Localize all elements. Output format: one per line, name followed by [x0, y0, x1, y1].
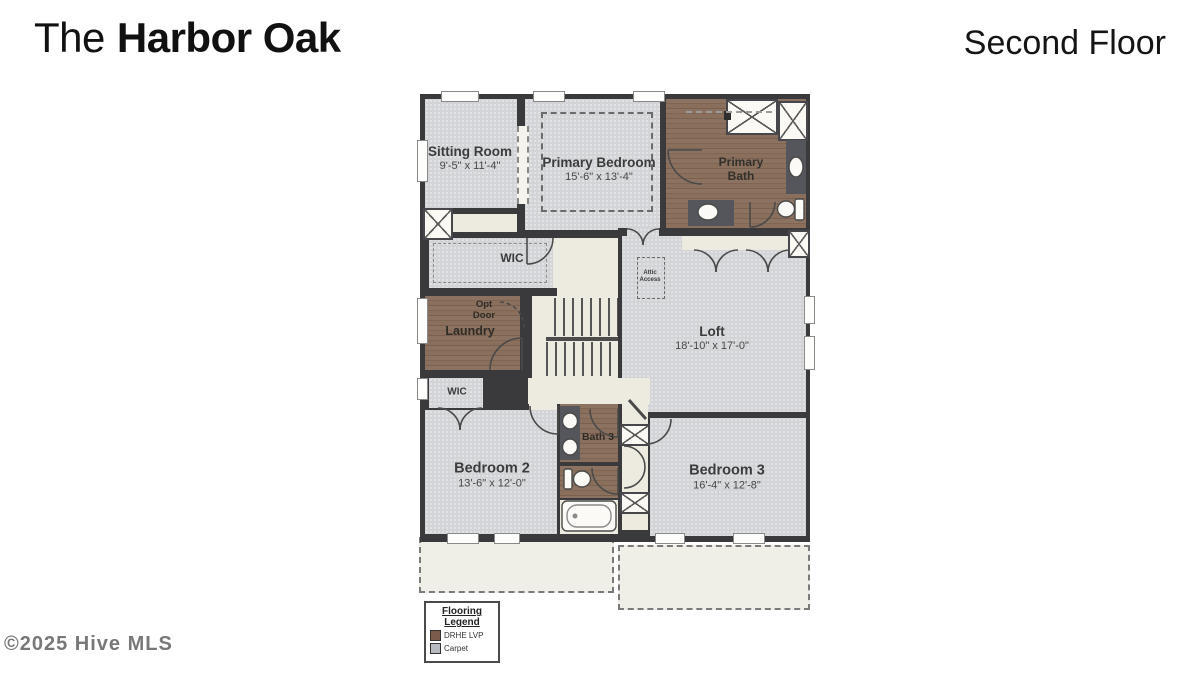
window: [441, 91, 479, 102]
window: [804, 336, 815, 370]
bath3-vanity-counter: [560, 406, 580, 460]
stairs-lower-treads: [546, 342, 618, 376]
shower-head-icon: [724, 111, 731, 120]
cased-opening: [517, 126, 529, 204]
sitting-room-label: Sitting Room 9'-5" x 11'-4": [428, 144, 512, 172]
wic-shelving: [433, 243, 547, 283]
french-door-opening: [627, 228, 659, 236]
carpet-swatch-icon: [430, 643, 441, 654]
linen-closet-icon-d: [620, 492, 650, 514]
linen-closet-icon-a: [423, 208, 453, 240]
flooring-legend: Flooring Legend DRHE LVP Carpet: [424, 601, 500, 663]
legend-item-lvp: DRHE LVP: [430, 630, 494, 641]
window: [804, 296, 815, 324]
floor-label: Second Floor: [964, 24, 1166, 63]
primary-vanity-counter: [786, 140, 806, 194]
opt-door-label: Opt Door: [466, 300, 502, 322]
window: [733, 533, 765, 544]
primary-bedroom-label: Primary Bedroom 15'-6" x 13'-4": [542, 155, 655, 183]
bedroom3-closet-floor: [624, 444, 646, 488]
stairs-rail: [546, 337, 618, 341]
laundry-label: Laundry: [445, 324, 494, 338]
roof-area-right: [618, 545, 810, 610]
page-title: TheHarbor Oak: [34, 14, 341, 62]
title-plan-name: Harbor Oak: [117, 14, 341, 61]
linen-closet-icon-c: [620, 424, 650, 446]
linen-closet-icon-b: [788, 230, 810, 258]
primary-vanity2-counter: [688, 200, 734, 226]
window: [655, 533, 685, 544]
stairs-upper-treads: [554, 298, 618, 336]
legend-title: Flooring Legend: [430, 606, 494, 628]
bedroom2-wic-label: WIC: [447, 386, 466, 398]
window: [533, 91, 565, 102]
corner-shower-icon: [778, 101, 808, 141]
title-prefix: The: [34, 14, 105, 61]
lvp-swatch-icon: [430, 630, 441, 641]
attic-access-label: Attic Access: [637, 270, 663, 284]
roof-area-left: [419, 537, 614, 593]
shower-icon: [726, 99, 778, 135]
primary-bath-label: Primary Bath: [710, 156, 772, 184]
bath3-tub-area: [560, 500, 618, 534]
copyright-watermark: ©2025 Hive MLS: [4, 633, 173, 656]
upper-hall-floor: [528, 378, 650, 404]
window: [417, 298, 428, 344]
floorplan-page: TheHarbor Oak Second Floor ©2025 Hive ML…: [0, 0, 1200, 675]
bedroom2-label: Bedroom 2 13'-6" x 12'-0": [454, 460, 530, 489]
window: [417, 140, 428, 182]
window: [494, 533, 520, 544]
legend-item-carpet: Carpet: [430, 643, 494, 654]
loft-label: Loft 18'-10" x 17'-0": [675, 324, 749, 352]
bath3-wc-floor: [560, 466, 618, 498]
bedroom3-label: Bedroom 3 16'-4" x 12'-8": [689, 462, 765, 491]
bath3-label: Bath 3: [582, 431, 614, 443]
window: [447, 533, 479, 544]
window: [633, 91, 665, 102]
stair-hall-floor: [553, 238, 618, 288]
primary-wic-label: WIC: [500, 252, 523, 266]
window: [417, 378, 428, 400]
